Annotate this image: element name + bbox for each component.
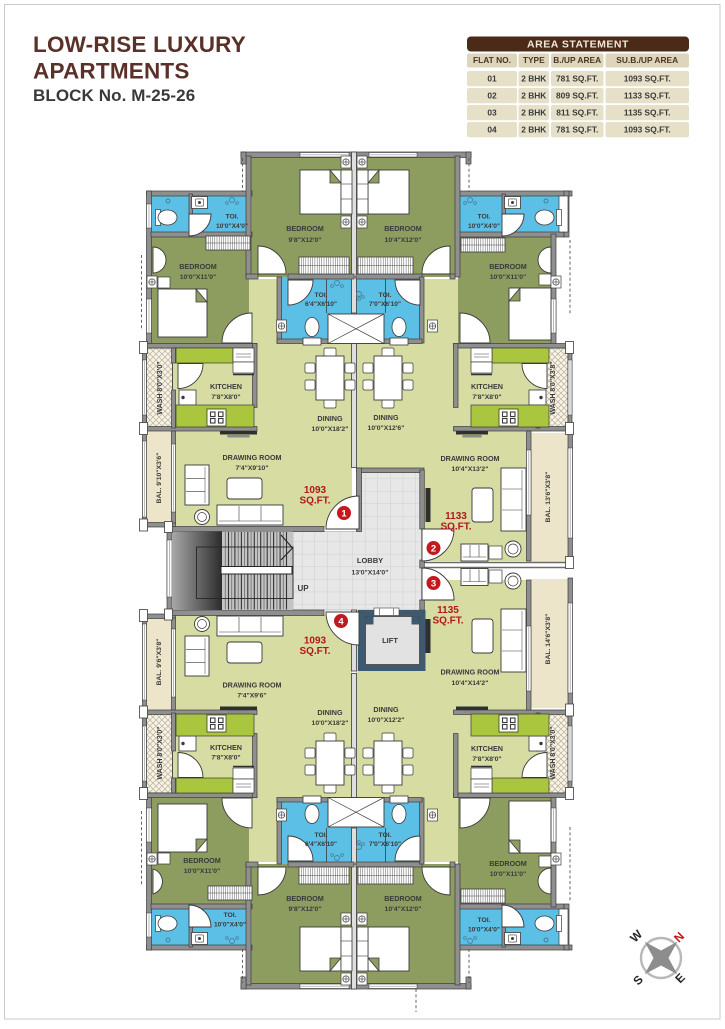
svg-text:BAL. 9'6"X3'8": BAL. 9'6"X3'8" [156, 638, 163, 685]
svg-text:9'8"X12'0": 9'8"X12'0" [288, 906, 321, 913]
svg-text:BEDROOM: BEDROOM [286, 894, 324, 903]
svg-text:BAL. 9'10"X3'6": BAL. 9'10"X3'6" [156, 453, 163, 504]
svg-text:BEDROOM: BEDROOM [384, 894, 422, 903]
svg-text:FLAT NO.: FLAT NO. [473, 55, 511, 65]
svg-text:BAL. 14'6"X3'8": BAL. 14'6"X3'8" [545, 614, 552, 665]
svg-text:TOI.: TOI. [223, 912, 236, 919]
svg-text:7'8"X8'0": 7'8"X8'0" [211, 394, 240, 401]
svg-text:TOI.: TOI. [477, 917, 490, 924]
svg-text:1133: 1133 [445, 511, 467, 522]
svg-text:1: 1 [341, 509, 347, 520]
svg-text:DINING: DINING [373, 413, 399, 422]
svg-text:7'8"X8'0": 7'8"X8'0" [211, 755, 240, 762]
svg-text:TOI.: TOI. [314, 292, 327, 299]
svg-text:10'0"X11'0": 10'0"X11'0" [490, 871, 527, 878]
svg-text:SQ.FT.: SQ.FT. [432, 616, 463, 627]
svg-text:7'4"X9'10": 7'4"X9'10" [235, 465, 268, 472]
svg-text:SQ.FT.: SQ.FT. [440, 522, 471, 533]
svg-text:1093 SQ.FT.: 1093 SQ.FT. [624, 124, 671, 134]
svg-text:WASH 8'0"X3'0": WASH 8'0"X3'0" [157, 726, 164, 779]
svg-text:781 SQ.FT.: 781 SQ.FT. [556, 73, 598, 83]
svg-text:1135: 1135 [437, 605, 459, 616]
svg-text:10'0"X18'2": 10'0"X18'2" [312, 426, 349, 433]
svg-text:B./UP AREA: B./UP AREA [553, 55, 601, 65]
svg-text:DINING: DINING [373, 705, 399, 714]
svg-text:02: 02 [487, 90, 497, 100]
svg-text:SQ.FT.: SQ.FT. [299, 496, 330, 507]
svg-text:WASH 8'0"X3'8": WASH 8'0"X3'8" [550, 361, 557, 414]
svg-text:10'4"X14'2": 10'4"X14'2" [452, 680, 489, 687]
svg-text:10'4"X12'0": 10'4"X12'0" [385, 906, 422, 913]
svg-text:10'0"X11'0": 10'0"X11'0" [184, 868, 221, 875]
svg-text:4: 4 [338, 617, 344, 628]
svg-text:TYPE: TYPE [523, 55, 545, 65]
svg-text:10'0"X11'0": 10'0"X11'0" [180, 274, 217, 281]
svg-text:1093 SQ.FT.: 1093 SQ.FT. [624, 73, 671, 83]
svg-text:BEDROOM: BEDROOM [489, 859, 527, 868]
svg-text:SU.B./UP AREA: SU.B./UP AREA [616, 55, 678, 65]
svg-text:TOI.: TOI. [314, 832, 327, 839]
svg-text:1133 SQ.FT.: 1133 SQ.FT. [624, 90, 671, 100]
svg-text:BAL. 13'6"X3'8": BAL. 13'6"X3'8" [545, 472, 552, 523]
svg-text:7'8"X8'0": 7'8"X8'0" [472, 756, 501, 763]
svg-text:SQ.FT.: SQ.FT. [299, 646, 330, 657]
svg-text:10'0"X4'0": 10'0"X4'0" [468, 223, 500, 230]
svg-text:KITCHEN: KITCHEN [471, 744, 503, 753]
svg-text:1093: 1093 [304, 636, 327, 647]
svg-text:KITCHEN: KITCHEN [210, 382, 242, 391]
svg-text:781 SQ.FT.: 781 SQ.FT. [556, 124, 598, 134]
svg-text:3: 3 [431, 579, 436, 590]
svg-text:10'0"X11'0": 10'0"X11'0" [490, 274, 527, 281]
svg-text:10'0"X4'0": 10'0"X4'0" [468, 927, 500, 934]
svg-text:TOI.: TOI. [225, 214, 238, 221]
svg-text:7'0"X6'10": 7'0"X6'10" [369, 841, 401, 848]
svg-text:TOI.: TOI. [378, 832, 391, 839]
svg-text:BLOCK No. M-25-26: BLOCK No. M-25-26 [33, 86, 195, 105]
svg-text:APARTMENTS: APARTMENTS [33, 59, 190, 84]
svg-text:KITCHEN: KITCHEN [210, 743, 242, 752]
svg-text:LOW-RISE LUXURY: LOW-RISE LUXURY [33, 32, 246, 57]
svg-text:LOBBY: LOBBY [357, 556, 383, 565]
svg-text:DINING: DINING [317, 414, 343, 423]
svg-text:DINING: DINING [317, 708, 343, 717]
svg-text:KITCHEN: KITCHEN [471, 382, 503, 391]
svg-text:DRAWING ROOM: DRAWING ROOM [222, 681, 281, 690]
svg-text:AREA STATEMENT: AREA STATEMENT [527, 39, 629, 51]
svg-text:7'4"X9'6": 7'4"X9'6" [237, 693, 266, 700]
svg-text:10'0"X12'6": 10'0"X12'6" [368, 425, 405, 432]
svg-text:BEDROOM: BEDROOM [179, 262, 217, 271]
svg-text:03: 03 [487, 107, 497, 117]
svg-text:2 BHK: 2 BHK [521, 124, 546, 134]
svg-text:6'4"X6'10": 6'4"X6'10" [305, 301, 337, 308]
svg-text:7'0"X6'10": 7'0"X6'10" [369, 301, 401, 308]
svg-text:01: 01 [487, 73, 497, 83]
svg-text:2 BHK: 2 BHK [521, 107, 546, 117]
svg-text:BEDROOM: BEDROOM [489, 262, 527, 271]
svg-text:10'4"X12'0": 10'4"X12'0" [385, 237, 422, 244]
svg-text:WASH 8'0"X3'0": WASH 8'0"X3'0" [157, 361, 164, 414]
svg-text:BEDROOM: BEDROOM [384, 224, 422, 233]
svg-text:809 SQ.FT.: 809 SQ.FT. [556, 90, 598, 100]
svg-text:04: 04 [487, 124, 497, 134]
svg-text:TOI.: TOI. [378, 292, 391, 299]
svg-text:WASH 8'0"X3'0": WASH 8'0"X3'0" [550, 726, 557, 779]
svg-text:DRAWING ROOM: DRAWING ROOM [440, 454, 499, 463]
svg-text:BEDROOM: BEDROOM [286, 224, 324, 233]
svg-text:10'4"X13'2": 10'4"X13'2" [452, 466, 489, 473]
svg-text:10'0"X18'2": 10'0"X18'2" [312, 720, 349, 727]
svg-text:TOI.: TOI. [477, 214, 490, 221]
svg-text:DRAWING ROOM: DRAWING ROOM [440, 668, 499, 677]
svg-text:10'0"X4'0": 10'0"X4'0" [214, 922, 246, 929]
svg-text:811 SQ.FT.: 811 SQ.FT. [556, 107, 598, 117]
svg-text:13'0"X14'0": 13'0"X14'0" [352, 570, 389, 577]
svg-text:DRAWING ROOM: DRAWING ROOM [222, 453, 281, 462]
svg-text:2 BHK: 2 BHK [521, 90, 546, 100]
svg-text:6'4"X6'10": 6'4"X6'10" [305, 841, 337, 848]
svg-text:10'0"X12'2": 10'0"X12'2" [368, 717, 405, 724]
svg-text:10'0"X4'0": 10'0"X4'0" [216, 223, 248, 230]
svg-text:2 BHK: 2 BHK [521, 73, 546, 83]
svg-text:1135 SQ.FT.: 1135 SQ.FT. [624, 107, 671, 117]
svg-text:9'8"X12'0": 9'8"X12'0" [288, 237, 321, 244]
svg-text:1093: 1093 [304, 485, 327, 496]
svg-text:UP: UP [297, 584, 309, 593]
svg-text:7'8"X8'0": 7'8"X8'0" [472, 394, 501, 401]
svg-text:BEDROOM: BEDROOM [183, 856, 221, 865]
svg-text:LIFT: LIFT [382, 636, 398, 645]
svg-text:2: 2 [431, 544, 436, 555]
